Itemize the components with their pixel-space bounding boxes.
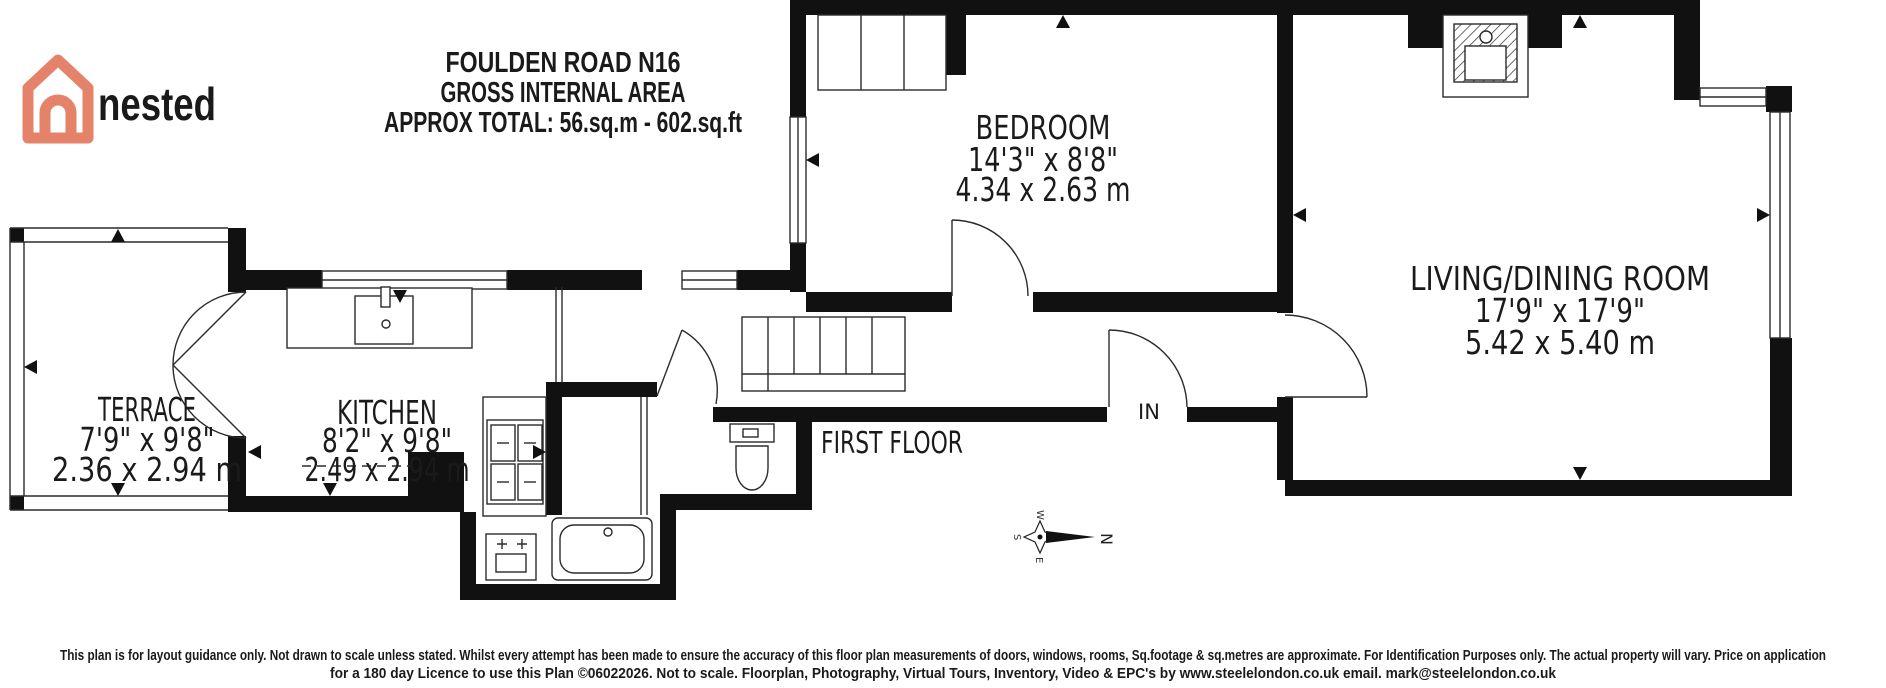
title-line-3: APPROX TOTAL: 56.sq.m - 602.sq.ft	[384, 107, 742, 139]
compass-west-label: W	[1034, 510, 1045, 520]
compass-icon: N S W E	[1011, 510, 1116, 563]
floor-label: FIRST FLOOR	[821, 426, 963, 461]
title-line-2: GROSS INTERNAL AREA	[441, 77, 686, 109]
room-dims-metric: 2.49 x 2.94 m	[305, 450, 470, 489]
floorplan-page: nested FOULDEN ROAD N16 GROSS INTERNAL A…	[0, 0, 1886, 688]
living-top-right-window	[1700, 88, 1766, 106]
room-label-living-dining: LIVING/DINING ROOM 17'9" x 17'9" 5.42 x …	[1410, 259, 1710, 362]
bedroom-door	[952, 220, 1028, 296]
disclaimer-line-2: for a 180 day Licence to use this Plan ©…	[330, 666, 1557, 682]
living-right-window	[1770, 112, 1790, 338]
fireplace-icon	[1443, 15, 1528, 97]
toilet-icon	[730, 424, 774, 490]
wardrobe	[818, 15, 946, 90]
compass-south-label: S	[1011, 534, 1022, 540]
room-label-bedroom: BEDROOM 14'3" x 8'8" 4.34 x 2.63 m	[956, 108, 1131, 209]
brand-wordmark: nested	[98, 78, 216, 130]
stairs	[742, 317, 905, 391]
kitchen-window	[322, 271, 507, 289]
compass-north-label: N	[1097, 533, 1116, 545]
bathroom-door	[657, 330, 717, 404]
stairwell-window	[682, 271, 737, 289]
compass-east-label: E	[1033, 557, 1044, 563]
plan-title: FOULDEN ROAD N16 GROSS INTERNAL AREA APP…	[384, 47, 742, 139]
bathtub-icon	[552, 518, 652, 580]
disclaimer: This plan is for layout guidance only. N…	[60, 648, 1826, 682]
title-line-1: FOULDEN ROAD N16	[446, 47, 681, 79]
room-dims-metric: 4.34 x 2.63 m	[956, 170, 1131, 209]
partitions	[556, 287, 647, 515]
entrance-label: IN	[1138, 400, 1160, 424]
entrance-door	[1109, 330, 1187, 407]
room-dims-metric: 2.36 x 2.94 m	[52, 450, 242, 489]
nested-house-logo	[28, 60, 88, 138]
room-label-kitchen: KITCHEN 8'2" x 9'8" 2.49 x 2.94 m	[305, 393, 470, 489]
floorplan-canvas: nested FOULDEN ROAD N16 GROSS INTERNAL A…	[0, 0, 1886, 688]
basin-icon	[486, 534, 536, 580]
living-room-door	[1285, 315, 1367, 397]
bedroom-window	[790, 117, 806, 243]
room-dims-metric: 5.42 x 5.40 m	[1465, 323, 1655, 362]
disclaimer-line-1: This plan is for layout guidance only. N…	[60, 648, 1826, 664]
